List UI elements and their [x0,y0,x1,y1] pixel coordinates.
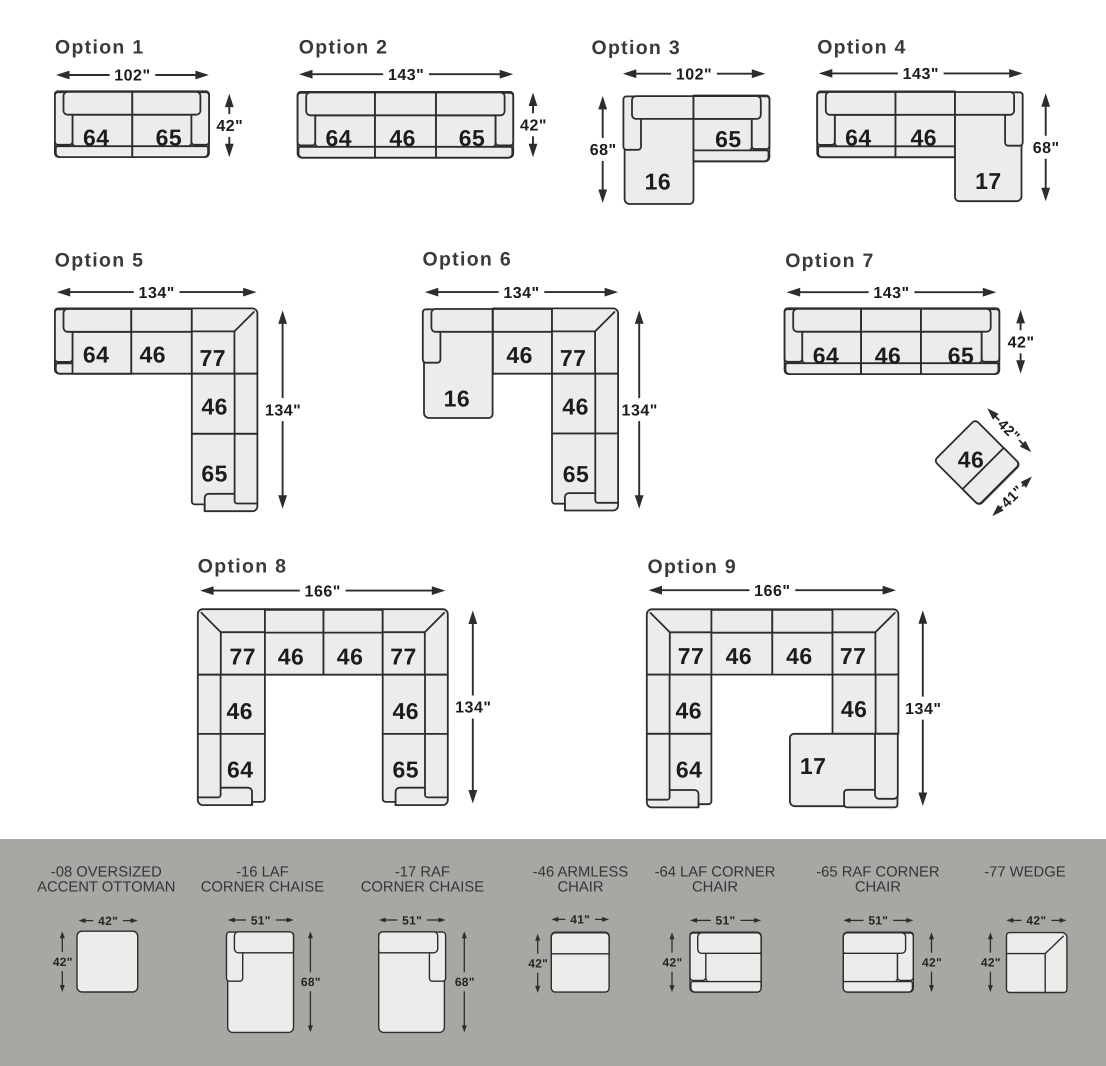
svg-text:51": 51" [868,914,888,928]
svg-text:64: 64 [676,756,703,782]
svg-text:46: 46 [958,447,985,473]
svg-text:42": 42" [216,118,243,135]
svg-text:68": 68" [590,142,617,159]
svg-text:65: 65 [156,125,183,151]
svg-text:-17 RAF: -17 RAF [395,865,450,881]
svg-text:Option 7: Option 7 [785,250,874,272]
svg-text:42": 42" [98,914,118,928]
svg-text:46: 46 [841,696,868,722]
svg-text:134": 134" [265,402,301,419]
svg-text:46: 46 [875,343,902,369]
svg-text:77: 77 [390,643,417,669]
svg-text:65: 65 [563,461,590,487]
svg-text:-16 LAF: -16 LAF [236,865,289,881]
svg-text:16: 16 [444,385,471,411]
svg-text:41": 41" [570,913,590,927]
svg-text:42": 42" [922,955,942,969]
svg-text:46: 46 [676,698,703,724]
svg-text:46: 46 [140,342,167,368]
svg-text:46: 46 [726,643,753,669]
svg-text:17: 17 [975,168,1002,194]
svg-text:46: 46 [389,125,416,151]
svg-text:46: 46 [393,698,420,724]
svg-text:-08 OVERSIZED: -08 OVERSIZED [51,865,162,881]
svg-text:46: 46 [201,394,228,420]
svg-text:134": 134" [455,700,491,717]
svg-text:46: 46 [337,643,364,669]
svg-text:65: 65 [459,125,486,151]
svg-text:77: 77 [840,643,867,669]
svg-text:Option 5: Option 5 [55,249,144,271]
svg-text:64: 64 [326,125,353,151]
svg-text:65: 65 [393,757,420,783]
svg-text:143": 143" [873,285,909,302]
svg-text:42": 42" [1008,335,1035,352]
svg-text:-77 WEDGE: -77 WEDGE [984,865,1066,881]
svg-text:42": 42" [528,957,548,971]
svg-text:CORNER CHAISE: CORNER CHAISE [361,880,484,896]
svg-text:42": 42" [1026,914,1046,928]
svg-text:134": 134" [622,402,658,419]
svg-text:102": 102" [676,66,712,83]
svg-text:64: 64 [83,125,110,151]
svg-text:77: 77 [200,345,227,371]
svg-text:42": 42" [981,955,1001,969]
svg-text:64: 64 [227,757,254,783]
svg-text:CORNER CHAISE: CORNER CHAISE [201,880,324,896]
svg-text:46: 46 [786,643,813,669]
svg-text:51": 51" [251,913,271,927]
svg-text:68": 68" [455,975,475,989]
svg-text:46: 46 [278,643,305,669]
svg-text:46: 46 [911,125,938,151]
svg-text:46: 46 [227,698,254,724]
svg-text:65: 65 [948,343,975,369]
svg-text:46: 46 [506,342,533,368]
svg-text:51": 51" [716,914,736,928]
svg-text:77: 77 [678,643,705,669]
svg-text:Option 6: Option 6 [423,249,512,271]
svg-text:143": 143" [388,67,424,84]
svg-text:16: 16 [645,169,672,195]
svg-text:Option 9: Option 9 [648,556,737,578]
svg-text:42": 42" [663,955,683,969]
svg-text:64: 64 [813,343,840,369]
svg-text:CHAIR: CHAIR [557,880,603,896]
svg-text:166": 166" [754,583,790,600]
svg-text:166": 166" [305,583,341,600]
svg-text:68": 68" [1033,140,1060,157]
svg-text:68": 68" [301,975,321,989]
svg-text:143": 143" [903,66,939,83]
svg-text:CHAIR: CHAIR [855,880,901,896]
svg-text:-64 LAF CORNER: -64 LAF CORNER [655,865,776,881]
svg-text:Option 8: Option 8 [198,555,287,577]
svg-text:77: 77 [560,345,587,371]
svg-text:65: 65 [201,460,228,486]
svg-text:42": 42" [520,118,547,135]
svg-text:CHAIR: CHAIR [692,880,738,896]
svg-text:-46 ARMLESS: -46 ARMLESS [533,865,629,881]
svg-text:ACCENT OTTOMAN: ACCENT OTTOMAN [37,880,175,896]
svg-text:134": 134" [905,701,941,718]
svg-text:77: 77 [230,643,257,669]
svg-text:134": 134" [139,285,175,302]
svg-text:42": 42" [53,955,73,969]
svg-text:64: 64 [845,125,872,151]
svg-text:Option 4: Option 4 [817,36,906,58]
svg-text:-65 RAF CORNER: -65 RAF CORNER [816,865,939,881]
svg-text:46: 46 [562,393,589,419]
svg-text:102": 102" [114,68,150,85]
svg-text:Option 2: Option 2 [299,36,388,58]
svg-text:Option 3: Option 3 [592,37,681,59]
svg-text:51": 51" [402,913,422,927]
svg-text:Option 1: Option 1 [55,36,144,58]
svg-text:64: 64 [83,342,110,368]
svg-text:134": 134" [503,285,539,302]
svg-text:65: 65 [715,126,742,152]
svg-text:17: 17 [800,753,827,779]
